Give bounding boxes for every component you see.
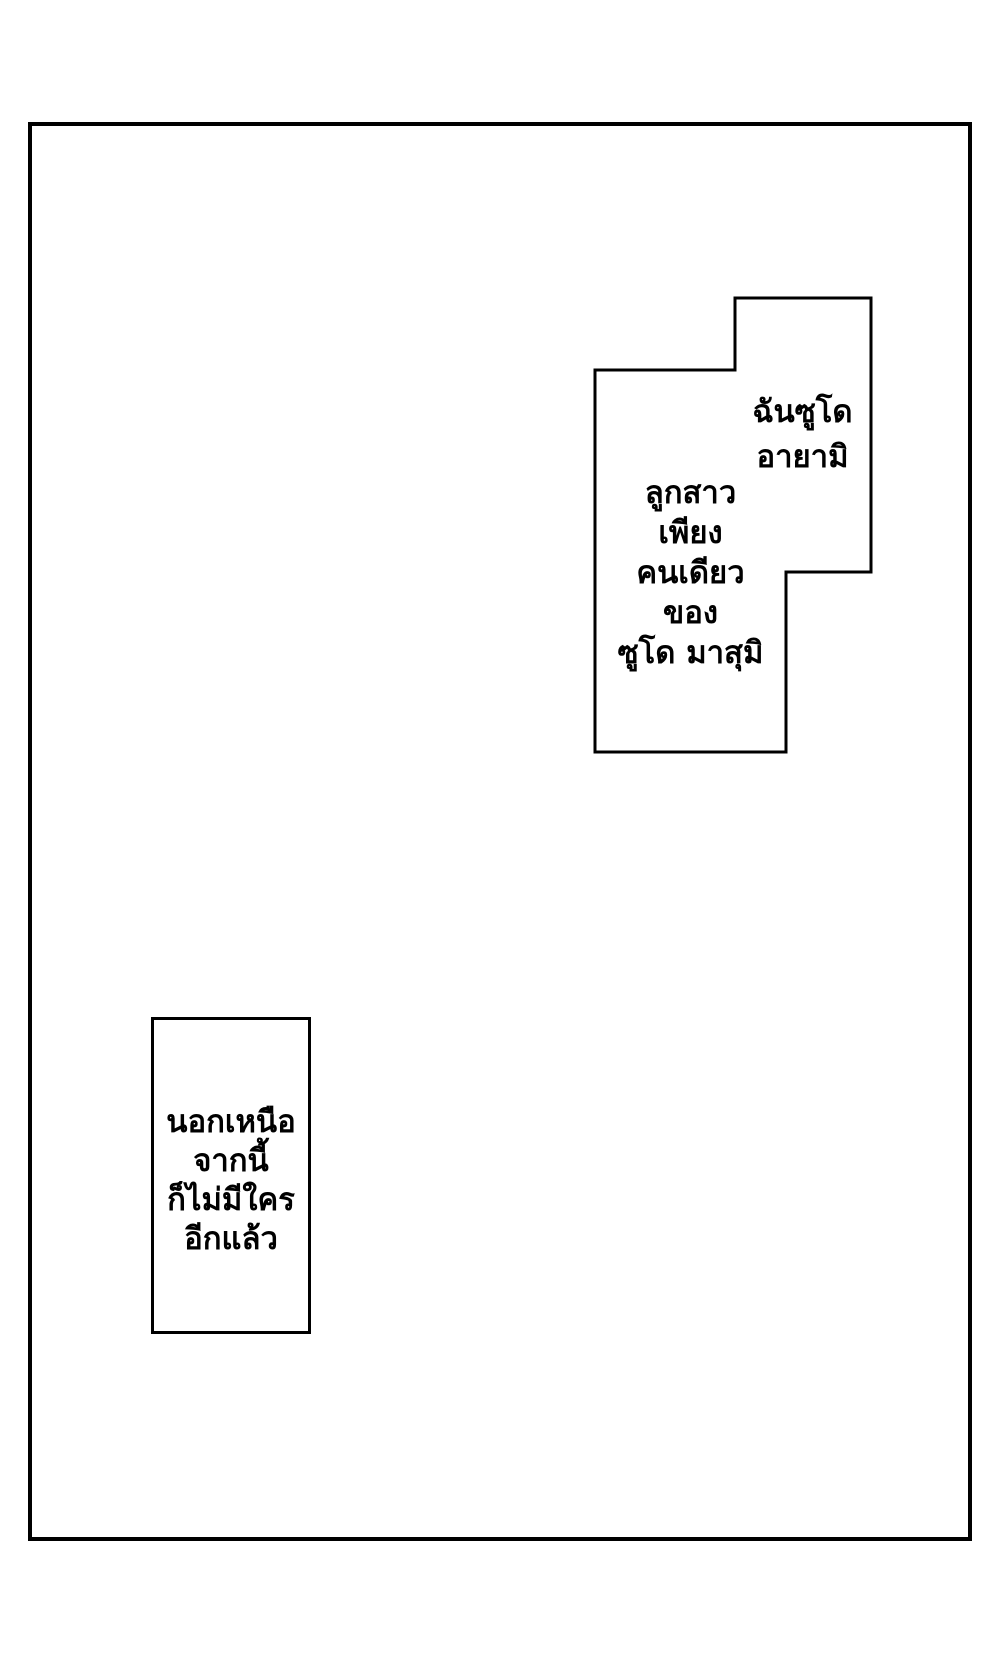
caption-text-line: อีกแล้ว bbox=[184, 1220, 278, 1259]
balloon-text-line: ซูโด มาสุมิ bbox=[618, 633, 764, 673]
balloon-text-line: เพียง bbox=[658, 513, 722, 553]
caption-text-line: จากนี้ bbox=[193, 1142, 269, 1181]
manga-page: ฉันซูโด อายามิ ลูกสาว เพียง คนเดียว ของ … bbox=[0, 0, 1000, 1667]
caption-box: นอกเหนือ จากนี้ ก็ไม่มีใคร อีกแล้ว bbox=[151, 1017, 311, 1334]
balloon-text-line: คนเดียว bbox=[636, 553, 744, 593]
balloon-text-line: ลูกสาว bbox=[645, 473, 737, 513]
caption-text-line: ก็ไม่มีใคร bbox=[167, 1181, 295, 1220]
balloon-text-line: ของ bbox=[663, 593, 718, 633]
balloon-detail-text: ลูกสาว เพียง คนเดียว ของ ซูโด มาสุมิ bbox=[595, 370, 786, 752]
caption-text-line: นอกเหนือ bbox=[166, 1103, 295, 1142]
